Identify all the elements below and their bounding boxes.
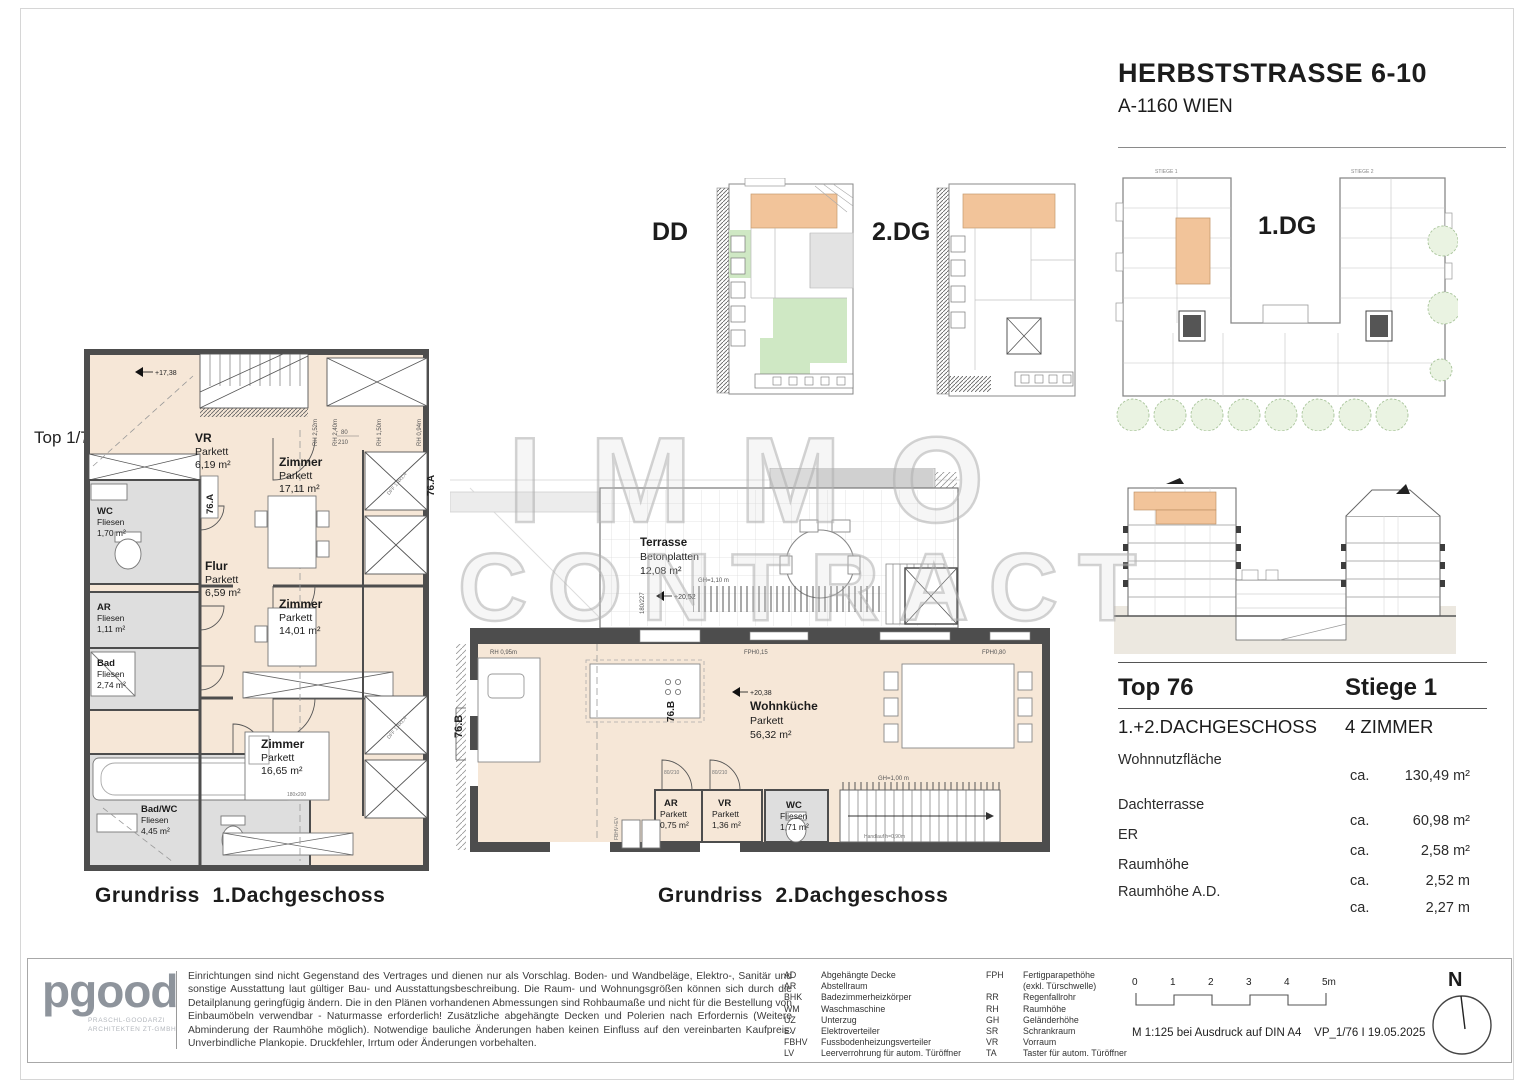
dining [884,664,1032,748]
svg-text:6,59 m²: 6,59 m² [205,587,241,599]
keyplan-dd-label: DD [652,218,688,247]
scale-note: M 1:125 bei Ausdruck auf DIN A4 VP_1/76 … [1132,1027,1425,1039]
legend-column-1: ADAbgehängte Decke ARAbstellraum BHKBade… [784,970,961,1060]
info-row-room-height-ad: Raumhöhe A.D. ca.2,27 m [1118,884,1470,900]
caption-plan-1dg: Grundriss 1.Dachgeschoss [95,884,385,908]
svg-text:Flur: Flur [205,559,228,573]
info-divider-mid [1118,708,1487,709]
unit-tag-b-edge: 76.B [453,715,465,738]
disclaimer-text: Einrichtungen sind nicht Gegenstand des … [188,970,792,1050]
floor-plan-2dg: Terrasse Betonplatten 12,08 m² +20,52 GH… [450,468,1070,876]
svg-text:Fliesen: Fliesen [780,811,808,821]
svg-text:14,01 m²: 14,01 m² [279,625,321,637]
svg-text:Parkett: Parkett [261,752,294,764]
svg-text:AR: AR [664,798,678,809]
info-label: Raumhöhe A.D. [1118,884,1220,900]
info-row-room-height: Raumhöhe ca.2,52 m [1118,857,1470,873]
svg-text:4,45 m²: 4,45 m² [141,826,170,836]
rh-wall: RH 0,95m [490,650,517,656]
logo-subline-1: PRASCHL-GOODARZI [88,1017,165,1025]
svg-text:1,70 m²: 1,70 m² [97,528,126,538]
info-prefix: ca. [1350,768,1378,784]
svg-text:Parkett: Parkett [660,809,688,819]
svg-text:VR: VR [195,431,212,445]
stiege2-label: STIEGE 2 [1351,169,1374,175]
svg-text:+20,52: +20,52 [674,594,696,601]
svg-text:Parkett: Parkett [279,612,312,624]
floor-plan-1dg: DFF 1,4x1,4 DFF 1,4x1,4 180x200 +17,38 [83,346,439,876]
floor-plan-sheet: HERBSTSTRASSE 6-10 A-1160 WIEN IMMO CONT… [0,0,1536,1087]
info-row-er: ER ca.2,58 m² [1118,827,1470,843]
footer: pgood PRASCHL-GOODARZI ARCHITEKTEN ZT-GM… [27,958,1512,1063]
svg-text:Handlauf h=0,90m: Handlauf h=0,90m [864,834,905,840]
svg-text:Fliesen: Fliesen [97,669,125,679]
svg-text:80: 80 [341,430,348,436]
svg-text:Zimmer: Zimmer [279,597,323,611]
rail-gh: GH=1,10 m [698,578,729,584]
info-value: 130,49 m² [1378,768,1470,784]
info-label: Wohnnutzfläche [1118,752,1222,768]
svg-text:Parkett: Parkett [750,715,783,727]
info-label: Raumhöhe [1118,857,1189,873]
terrace-railing [693,586,880,612]
company-logo: pgood [42,969,178,1013]
stair-1dg [200,354,308,417]
svg-text:WC: WC [97,506,113,517]
svg-text:GH=1,00 m: GH=1,00 m [878,776,909,782]
info-row-roof-terrace: Dachterrasse ca.60,98 m² [1118,797,1470,813]
header-divider [1118,147,1506,148]
svg-text:Fliesen: Fliesen [97,517,125,527]
svg-text:Parkett: Parkett [195,446,228,458]
svg-text:Wohnküche: Wohnküche [750,699,818,713]
svg-text:1,11 m²: 1,11 m² [97,624,125,634]
room-count: 4 ZIMMER [1345,716,1433,738]
page-title: HERBSTSTRASSE 6-10 [1118,58,1427,89]
keyplan-2dg [935,180,1083,402]
fph-window: FPH0,80 [982,650,1006,656]
info-label: Dachterrasse [1118,797,1204,813]
svg-text:VR: VR [718,798,731,809]
keyplan-1dg: STIEGE 1 STIEGE 2 [1113,163,1458,431]
legend-column-2: FPHFertigparapethöhe (exkl. Türschwelle)… [986,970,1127,1060]
svg-text:1,36 m²: 1,36 m² [712,820,741,830]
svg-text:Bad/WC: Bad/WC [141,804,178,815]
svg-text:Parkett: Parkett [279,470,312,482]
svg-text:Fliesen: Fliesen [97,613,125,623]
building-sections [1110,468,1460,660]
svg-text:RH 0,94m: RH 0,94m [417,419,423,446]
logo-subline-2: ARCHITEKTEN ZT-GMBH [88,1026,176,1034]
svg-text:WC: WC [786,800,802,811]
svg-text:210: 210 [338,440,349,446]
svg-text:12,08 m²: 12,08 m² [640,565,682,577]
svg-text:Betonplatten: Betonplatten [640,551,699,563]
scale-bar [1128,991,1338,1011]
svg-text:+20,38: +20,38 [750,690,772,697]
svg-text:0,75 m²: 0,75 m² [660,820,689,830]
internal-stair: GH=1,00 m Handlauf h=0,90m [840,776,1000,842]
unit-tag-edge: 76.A [426,475,437,496]
caption-plan-2dg: Grundriss 2.Dachgeschoss [658,884,948,908]
section-unit-highlight-upper [1134,492,1216,510]
stiege1-label: STIEGE 1 [1155,169,1178,175]
page-subtitle: A-1160 WIEN [1118,96,1233,118]
keyplan-2dg-label: 2.DG [872,218,930,247]
stair-number: Stiege 1 [1345,674,1437,702]
unit-info-panel: Top 76 Stiege 1 1.+2.DACHGESCHOSS 4 ZIMM… [1118,660,1488,900]
svg-text:Parkett: Parkett [712,809,740,819]
svg-text:Zimmer: Zimmer [279,455,323,469]
svg-text:80/210: 80/210 [664,770,680,776]
svg-text:Fliesen: Fliesen [141,815,169,825]
svg-text:Parkett: Parkett [205,574,238,586]
dd-unit-highlight [751,194,837,228]
bed-size: 180x200 [287,792,306,798]
svg-text:RH 2,40m: RH 2,40m [333,419,339,446]
svg-text:Bad: Bad [97,658,115,669]
svg-text:AR: AR [97,602,111,613]
shaft-label: FBHV+EV [614,816,620,840]
svg-text:1,71 m²: 1,71 m² [780,822,809,832]
unit-tag-b-interior: 76.B [666,701,677,722]
terrace-door-dim: 180/227 [640,592,646,614]
svg-text:RH 2,52m: RH 2,52m [313,419,319,446]
1dg-unit-highlight [1176,218,1210,284]
svg-text:2,74 m²: 2,74 m² [97,680,126,690]
svg-text:6,19 m²: 6,19 m² [195,459,231,471]
svg-text:Zimmer: Zimmer [261,737,305,751]
floor-designation: 1.+2.DACHGESCHOSS [1118,716,1317,738]
north-arrow-icon [1424,987,1504,1057]
info-row-living-area: Wohnnutzfläche ca.130,49 m² [1118,752,1470,768]
unit-number: Top 76 [1118,674,1194,702]
svg-text:Terrasse: Terrasse [640,537,687,549]
2dg-unit-highlight [963,194,1055,228]
section-unit-highlight-lower [1156,510,1216,524]
svg-text:16,65 m²: 16,65 m² [261,765,303,777]
unit-tag-interior: 76.A [205,494,216,514]
footer-divider [176,971,177,1049]
svg-text:RH 1,50m: RH 1,50m [377,419,383,446]
info-label: ER [1118,827,1138,843]
svg-text:+17,38: +17,38 [155,370,177,377]
scale-bar-ticks: 012 345m [1132,977,1372,988]
svg-text:80/210: 80/210 [712,770,728,776]
svg-text:56,32 m²: 56,32 m² [750,729,792,741]
svg-text:17,11 m²: 17,11 m² [279,483,320,495]
keyplan-dd [715,178,865,403]
fph-door: FPH0,15 [744,650,768,656]
info-divider-top [1118,662,1487,663]
